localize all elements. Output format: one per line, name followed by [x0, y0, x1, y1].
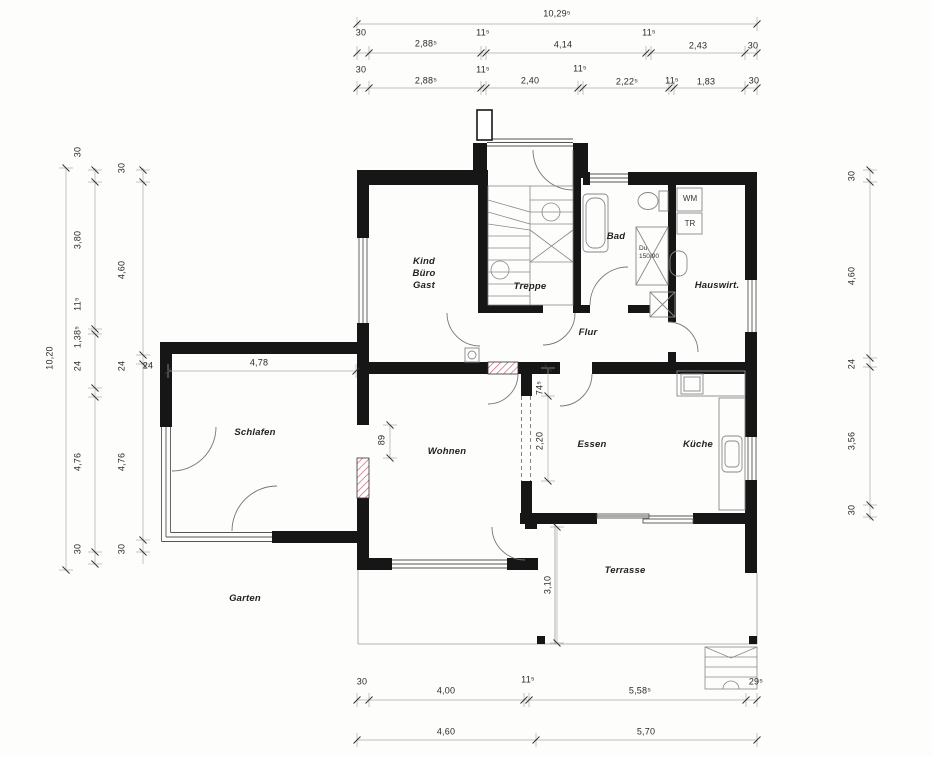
exterior-stairs [705, 647, 757, 689]
washing-machine-box [677, 188, 702, 211]
wohnen-terrace-door-arc [492, 527, 525, 560]
kitchen-counter-east [719, 398, 745, 510]
chimney [477, 110, 492, 140]
floor-drain [465, 348, 479, 362]
door-swings [172, 150, 698, 560]
hauswirt-door-arc [668, 322, 698, 352]
kind-door-arc [447, 313, 480, 346]
walls [160, 143, 757, 573]
terrace-edges [358, 524, 757, 644]
hatched-wall-segments [357, 362, 518, 498]
entrance-door-arc [533, 150, 573, 190]
floor-plan-drawing [0, 0, 932, 757]
schlafen-west-door-arc [172, 427, 216, 471]
flur-wohnen-door-arc [488, 374, 518, 404]
bad-door-arc [590, 267, 628, 305]
toilet-bowl [638, 193, 658, 210]
dryer-box [677, 213, 702, 234]
toilet-tank [659, 191, 668, 211]
terrace-posts [537, 636, 757, 644]
sanitary-fixtures [465, 188, 702, 362]
staircase [488, 186, 573, 305]
floor-plan-canvas: Kind Büro GastTreppeBadHauswirt.FlurSchl… [0, 0, 932, 757]
kitchen-counter-top [677, 371, 745, 396]
essen-door-arc [560, 374, 592, 406]
kitchen-fixtures [677, 371, 745, 510]
treppe-door-arc [543, 313, 575, 345]
schlafen-south-door-arc [232, 486, 277, 531]
